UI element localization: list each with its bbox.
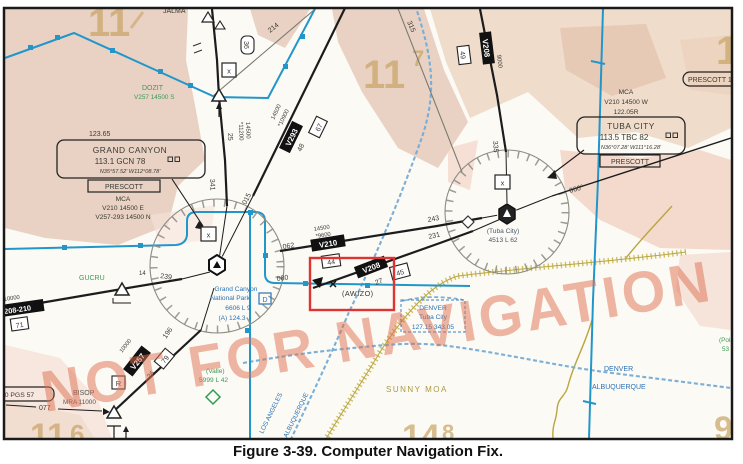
- x-marker: x: [501, 179, 505, 188]
- grand-canyon-mca-2: V210 14500 E: [102, 205, 144, 212]
- dozit-note: V257 14500 S: [134, 94, 175, 101]
- mileage-71: 71: [15, 322, 24, 330]
- x-marker: x: [207, 231, 211, 240]
- tuba-city-airport-2: 4513 L 62: [488, 237, 517, 244]
- mileage-44: 44: [327, 259, 336, 267]
- grid-number-bottom-center-sup: 8: [442, 420, 454, 445]
- grid-number-bottom-right: 9: [714, 410, 733, 448]
- tuba-city-airport-1: (Tuba City): [487, 228, 519, 235]
- grand-canyon-airport-3: 6606 L 9: [225, 305, 251, 312]
- gucru-fix-label: GUCRU: [79, 275, 105, 282]
- d-symbol: D: [262, 297, 267, 304]
- chart-figure: 11 11 7 1 11 6 14 8 9: [0, 0, 743, 464]
- grand-canyon-artcc: PRESCOTT: [105, 184, 144, 191]
- grid-number-top-right: 1: [716, 29, 738, 73]
- grid-number-bottom-left-sup: 6: [70, 419, 84, 449]
- grand-canyon-vor-symbol: [207, 255, 227, 275]
- grand-canyon-name: GRAND CANYON: [93, 145, 167, 155]
- grand-canyon-freq: 123.65: [89, 131, 111, 138]
- tuba-city-mca-1: MCA: [619, 89, 634, 96]
- grand-canyon-ident: 113.1 GCN 78: [95, 157, 146, 166]
- tuba-city-name: TUBA CITY: [607, 121, 655, 131]
- grand-canyon-airport-1: Grand Canyon: [215, 286, 258, 293]
- sunny-moa-label: SUNNY MOA: [386, 385, 448, 394]
- grand-canyon-airport-2: National Park: [210, 295, 250, 302]
- tuba-city-vor-symbol: [497, 204, 517, 224]
- enroute-chart: 11 11 7 1 11 6 14 8 9: [0, 0, 743, 464]
- tuba-city-mca-3: 122.05R: [614, 109, 639, 116]
- grid-number-center: 11: [363, 53, 405, 97]
- mileage-14: 14: [139, 271, 146, 277]
- mileage-36: 36: [242, 41, 249, 49]
- polacca-partial-note: 53: [722, 346, 730, 353]
- mileage-49: 49: [458, 51, 466, 60]
- grand-canyon-mca-3: V257-293 14500 N: [95, 214, 151, 221]
- boundary-albuquerque-east: ALBUQUERQUE: [592, 384, 646, 391]
- tuba-city-coords: N36°07.28' W111°16.28': [601, 145, 662, 151]
- grand-canyon-coords: N35°57.52' W112°08.78': [100, 169, 162, 175]
- v-route-moca: *11200: [237, 122, 244, 141]
- mileage-25: 25: [226, 133, 233, 141]
- radial-080: 080: [276, 275, 289, 283]
- prescott-partial-label: PRESCOTT 1: [688, 77, 732, 84]
- grand-canyon-mca-1: MCA: [116, 196, 131, 203]
- radial-239: 239: [160, 273, 173, 281]
- radial-335: 335: [491, 141, 499, 153]
- x-marker: x: [227, 67, 231, 76]
- v-route-mea: 14500: [244, 122, 251, 140]
- tuba-city-artcc: PRESCOTT: [611, 159, 650, 166]
- awizo-cnf-label: (AWIZO): [342, 289, 374, 298]
- boundary-denver: DENVER: [604, 366, 633, 373]
- figure-caption: Figure 3-39. Computer Navigation Fix.: [233, 443, 503, 460]
- grand-canyon-airport-4: (A) 124.3: [218, 315, 245, 322]
- tuba-city-mca-2: V210 14500 W: [604, 99, 648, 106]
- radial-341: 341: [208, 179, 216, 191]
- tuba-city-ident: 113.5 TBC 82: [600, 133, 649, 142]
- dozit-fix-label: DOZIT: [142, 85, 164, 92]
